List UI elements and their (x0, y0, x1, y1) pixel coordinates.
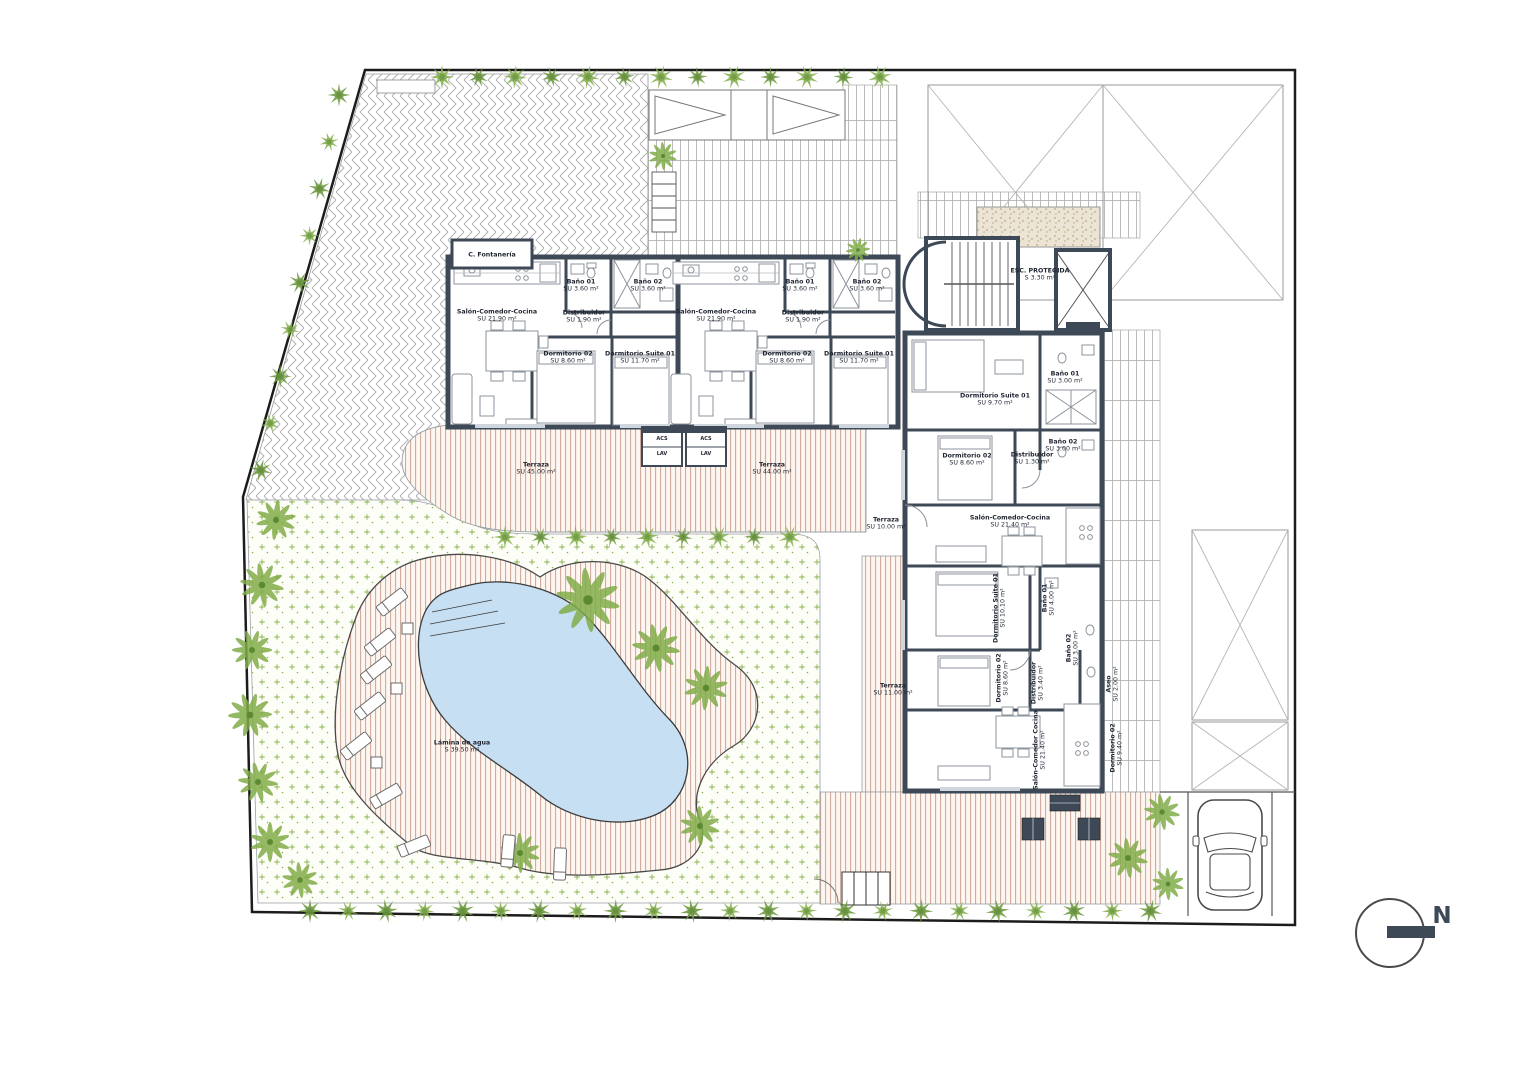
north-arrow (1356, 899, 1435, 967)
car (1193, 800, 1267, 910)
site-plan-drawing (0, 0, 1529, 1080)
ramp-area (649, 90, 845, 140)
elevator (1056, 250, 1110, 330)
left-wing-building (448, 257, 898, 428)
stairs-small-top (652, 172, 676, 232)
site-plan-page: N Salón-Comedor-CocinaSU 21.90 m²Distrib… (0, 0, 1529, 1080)
utility-room-box (452, 240, 532, 268)
boundary-inset-box (377, 80, 435, 93)
terrace-deck-left (402, 425, 866, 532)
right-wing-building (901, 333, 1102, 791)
terrace-deck-right-upper (862, 556, 907, 792)
